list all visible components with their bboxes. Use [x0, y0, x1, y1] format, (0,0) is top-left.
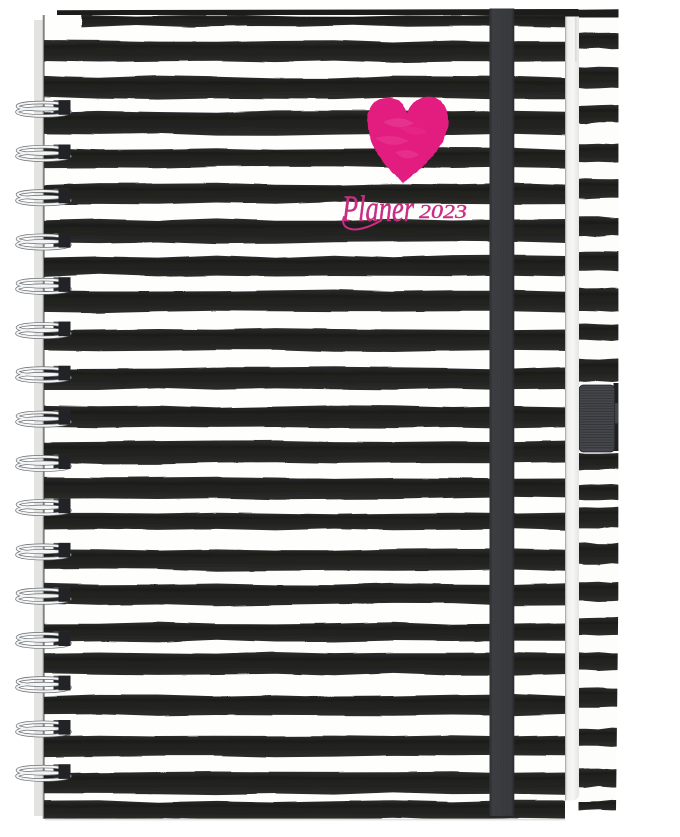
svg-text:Planer: Planer [341, 189, 414, 230]
svg-text:2023: 2023 [419, 201, 467, 223]
